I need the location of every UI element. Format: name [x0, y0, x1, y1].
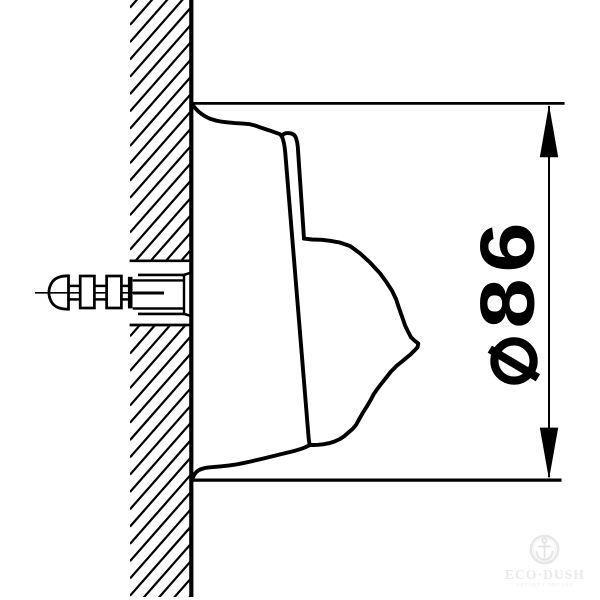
- svg-text:ECO·DUSH: ECO·DUSH: [505, 567, 585, 582]
- svg-text:IMPORT COMPANY: IMPORT COMPANY: [516, 584, 573, 589]
- svg-text:86: 86: [464, 217, 550, 329]
